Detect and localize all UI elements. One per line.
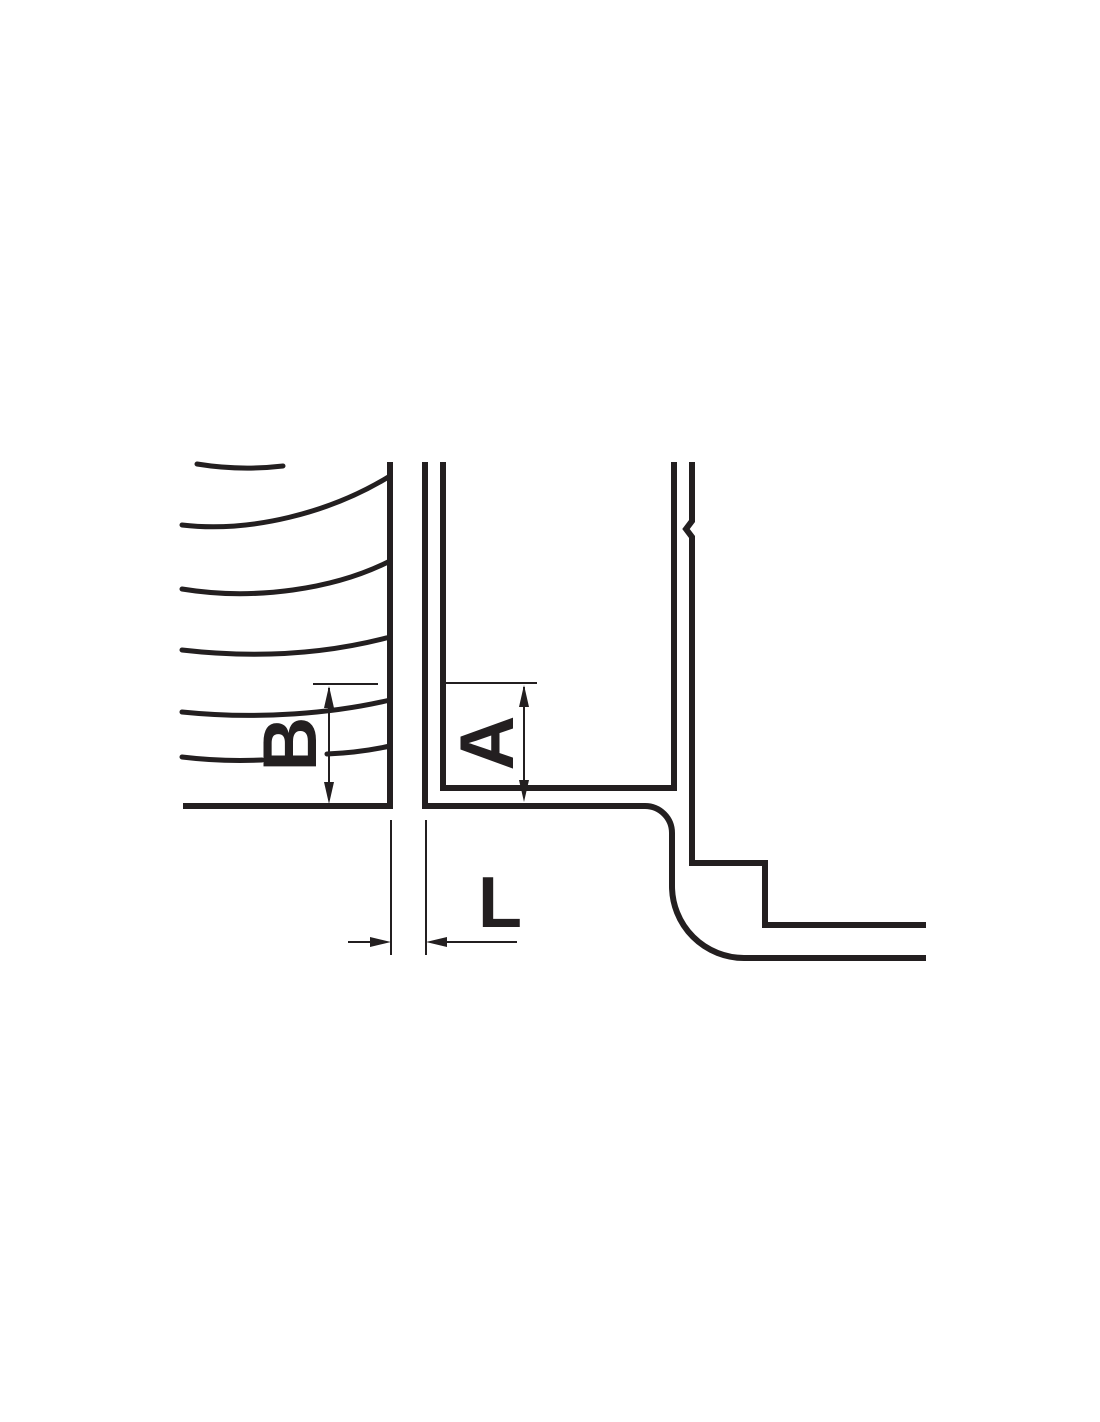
drawing-canvas: B A L [0, 0, 1100, 1422]
weld-contour-1 [197, 464, 283, 468]
dimension-label-b: B [248, 717, 333, 772]
dim-l-arrow-left-icon [426, 937, 447, 947]
dim-l-arrow-right-icon [370, 937, 391, 947]
weld-contour-6-right [327, 746, 390, 754]
weld-contour-2 [182, 476, 390, 527]
dim-a-arrow-up-icon [519, 685, 529, 707]
socket-step-profile [686, 462, 926, 925]
dimension-label-a: A [445, 716, 530, 771]
weld-contour-3 [182, 561, 390, 594]
dimension-label-l: L [478, 863, 522, 943]
weld-contour-5 [182, 700, 390, 715]
dim-b-arrow-up-icon [324, 686, 334, 708]
weld-contour-4 [182, 637, 390, 654]
technical-drawing: B A L [0, 0, 1100, 1422]
dim-b-arrow-down-icon [324, 782, 334, 804]
